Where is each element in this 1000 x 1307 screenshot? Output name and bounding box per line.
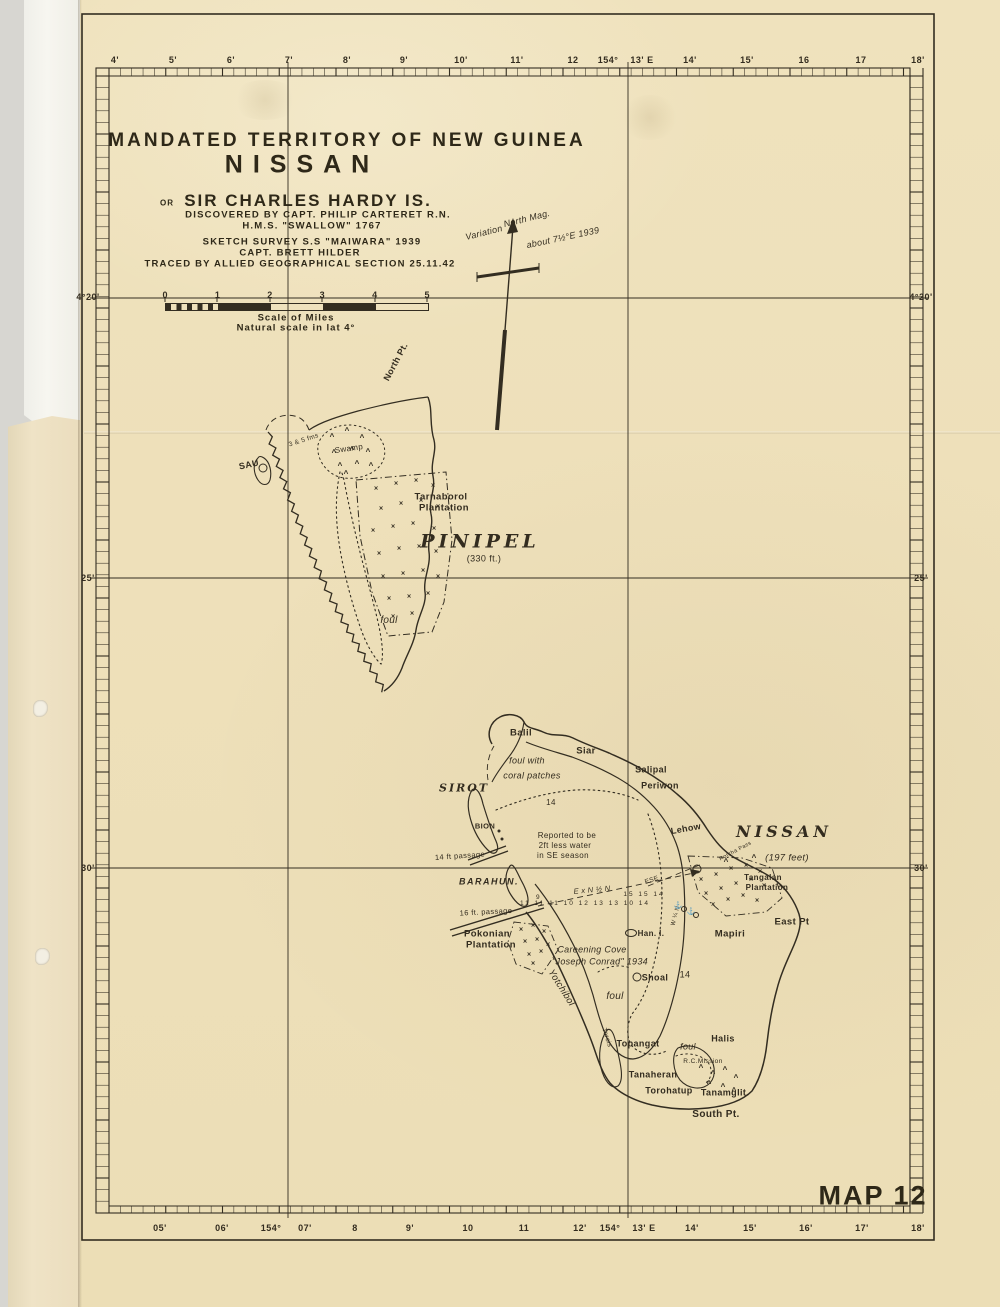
scale-number: 4 bbox=[372, 290, 377, 300]
graticule-label-bottom: 154° bbox=[600, 1223, 621, 1233]
map-label-foul-coral-2: coral patches bbox=[503, 772, 560, 781]
plantation-mark: × bbox=[762, 883, 766, 890]
lagoon-reef-dotted-shoal bbox=[598, 966, 630, 972]
plantation-mark: × bbox=[535, 937, 539, 944]
islet-dot bbox=[501, 838, 504, 841]
graticule-label-bottom: 10 bbox=[462, 1223, 473, 1233]
map-label-sounding-row-2: 15 15 14 bbox=[623, 892, 664, 899]
plantation-mark: × bbox=[542, 929, 546, 936]
pinipel-lagoon-dotted bbox=[336, 471, 382, 664]
graticule-label-top: 10' bbox=[454, 55, 468, 65]
plantation-mark: × bbox=[714, 872, 718, 879]
map-title-discovered: DISCOVERED BY CAPT. PHILIP CARTERET R.N. bbox=[185, 210, 451, 221]
plantation-mark: × bbox=[719, 886, 723, 893]
scale-number: 2 bbox=[267, 290, 272, 300]
graticule-label-right: 30' bbox=[914, 863, 928, 873]
map-label-careening-1: Careening Cove bbox=[557, 946, 626, 955]
map-title-or: OR bbox=[160, 199, 174, 208]
scale-segment bbox=[323, 304, 375, 310]
plantation-mark: × bbox=[421, 568, 425, 575]
graticule-label-top: 14' bbox=[683, 55, 697, 65]
graticule-label-top: 154° bbox=[598, 55, 619, 65]
plantation-mark: × bbox=[426, 591, 430, 598]
plantation-mark: × bbox=[726, 897, 730, 904]
map-label-pinipel: PINIPEL bbox=[420, 533, 540, 552]
vegetation-tuft: ^ bbox=[332, 449, 337, 457]
plantation-mark: × bbox=[411, 521, 415, 528]
map-drawing bbox=[0, 0, 1000, 1307]
map-label-salipal: Salipal bbox=[635, 766, 667, 775]
map-label-south-pt: South Pt. bbox=[692, 1110, 739, 1120]
graticule-label-bottom: 16' bbox=[799, 1223, 813, 1233]
map-label-sounding-14a: 14 bbox=[546, 799, 556, 807]
pinipel-reef-zigzag bbox=[268, 432, 383, 692]
map-label-reported-1: Reported to be bbox=[538, 832, 597, 840]
plantation-mark: × bbox=[519, 927, 523, 934]
graticule-label-left: 25' bbox=[81, 573, 95, 583]
scale-number: 3 bbox=[320, 290, 325, 300]
scale-number: 0 bbox=[162, 290, 167, 300]
map-label-periwon: Periwon bbox=[641, 782, 679, 791]
plantation-mark: × bbox=[523, 939, 527, 946]
plantation-mark: × bbox=[419, 498, 423, 505]
graticule-label-left: 30' bbox=[81, 863, 95, 873]
small-circle-symbol bbox=[693, 912, 699, 918]
vegetation-tuft: ^ bbox=[699, 1064, 704, 1072]
plantation-mark: × bbox=[399, 501, 403, 508]
islet-outline bbox=[625, 929, 637, 937]
map-label-halis: Halis bbox=[711, 1035, 735, 1044]
plantation-mark: × bbox=[431, 483, 435, 490]
graticule-label-bottom: 11 bbox=[519, 1223, 530, 1233]
graticule-label-bottom: 18' bbox=[911, 1223, 925, 1233]
vegetation-tuft: ^ bbox=[350, 446, 355, 454]
islet-dot bbox=[498, 830, 501, 833]
graticule-label-bottom: 154° bbox=[261, 1223, 282, 1233]
map-label-bion: BION bbox=[475, 822, 495, 830]
map-label-torohatup: Torohatup bbox=[645, 1087, 692, 1096]
map-label-tarnaborol-2: Plantation bbox=[419, 503, 469, 513]
vegetation-tuft: ^ bbox=[752, 854, 757, 862]
map-label-pokonian: Pokonian bbox=[464, 929, 510, 939]
plantation-mark: × bbox=[397, 546, 401, 553]
graticule-label-left: 4°20' bbox=[76, 292, 99, 302]
pinipel-north-coast bbox=[309, 397, 428, 430]
plantation-mark: × bbox=[417, 544, 421, 551]
graticule-label-top: 15' bbox=[740, 55, 754, 65]
plantation-mark: × bbox=[379, 506, 383, 513]
map-title-ship: H.M.S. "SWALLOW" 1767 bbox=[242, 221, 381, 232]
scanned-map-page: MANDATED TERRITORY OF NEW GUINEA NISSAN … bbox=[0, 0, 1000, 1307]
graticule-label-top: 16 bbox=[798, 55, 809, 65]
map-title-captain: CAPT. BRETT HILDER bbox=[239, 248, 360, 259]
graticule-label-top: 4' bbox=[111, 55, 119, 65]
map-label-siar: Siar bbox=[576, 746, 596, 756]
scale-segment bbox=[271, 304, 323, 310]
circle-symbol bbox=[259, 464, 268, 473]
vegetation-tuft: ^ bbox=[734, 1074, 739, 1082]
vegetation-tuft: ^ bbox=[345, 427, 350, 435]
vegetation-tuft: ^ bbox=[707, 1080, 712, 1088]
map-label-mapiri: Mapiri bbox=[715, 929, 745, 939]
map-title-island: NISSAN bbox=[225, 151, 379, 180]
vegetation-tuft: ^ bbox=[355, 460, 360, 468]
graticule-label-bottom: 06' bbox=[215, 1223, 229, 1233]
graticule-label-bottom: 15' bbox=[743, 1223, 757, 1233]
graticule-label-top: 7' bbox=[285, 55, 293, 65]
map-label-shoal: Shoal bbox=[642, 974, 669, 983]
map-label-topangat: Topangat bbox=[616, 1040, 659, 1049]
plantation-mark: × bbox=[711, 902, 715, 909]
map-label-foul-pinipel: foul bbox=[380, 616, 397, 626]
plantation-mark: × bbox=[391, 614, 395, 621]
graticule-label-bottom: 8 bbox=[352, 1223, 358, 1233]
graticule-label-right: 4°20' bbox=[909, 292, 932, 302]
map-label-balil: Balil bbox=[510, 728, 532, 738]
plantation-mark: × bbox=[734, 881, 738, 888]
plantation-mark: × bbox=[755, 898, 759, 905]
plantation-mark: × bbox=[377, 551, 381, 558]
map-label-reported-2: 2ft less water bbox=[539, 842, 592, 850]
plantation-mark: × bbox=[436, 504, 440, 511]
graticule-label-top: 8' bbox=[343, 55, 351, 65]
vegetation-tuft: ^ bbox=[338, 462, 343, 470]
graticule-label-top: 11' bbox=[510, 55, 523, 65]
plantation-mark: × bbox=[407, 594, 411, 601]
graticule-label-top: 18' bbox=[911, 55, 925, 65]
map-label-reported-3: in SE season bbox=[537, 852, 589, 860]
plantation-mark: × bbox=[434, 549, 438, 556]
plantation-mark: × bbox=[539, 949, 543, 956]
vegetation-tuft: ^ bbox=[711, 1070, 716, 1078]
vegetation-tuft: ^ bbox=[723, 1066, 728, 1074]
graticule-label-top: 12 bbox=[567, 55, 578, 65]
map-label-pokonian-2: Plantation bbox=[466, 940, 516, 950]
plantation-mark: × bbox=[374, 486, 378, 493]
vegetation-tuft: ^ bbox=[360, 434, 365, 442]
scale-caption-2: Natural scale in lat 4° bbox=[237, 323, 356, 334]
vegetation-tuft: ^ bbox=[369, 462, 374, 470]
graticule-label-bottom: 17' bbox=[855, 1223, 869, 1233]
plantation-mark: × bbox=[704, 891, 708, 898]
map-label-sounding-row: 11 11 11 10 12 13 13 10 14 bbox=[520, 901, 650, 908]
plantation-mark: × bbox=[527, 952, 531, 959]
scale-number: 1 bbox=[215, 290, 220, 300]
map-title-survey: SKETCH SURVEY S.S "MAIWARA" 1939 bbox=[203, 237, 422, 248]
north-arrow bbox=[477, 218, 539, 430]
graticule-lines bbox=[90, 62, 928, 1218]
map-label-foul-nissan-s: foul bbox=[680, 1043, 696, 1052]
map-title-territory: MANDATED TERRITORY OF NEW GUINEA bbox=[108, 130, 585, 152]
map-label-nissan: NISSAN bbox=[736, 824, 832, 840]
graticule-label-top: 6' bbox=[227, 55, 235, 65]
pinipel-north-spit bbox=[266, 415, 309, 430]
plantation-mark: × bbox=[414, 478, 418, 485]
plantation-mark: × bbox=[531, 961, 535, 968]
sirot-reef-link bbox=[487, 746, 494, 780]
plantation-mark: × bbox=[699, 877, 703, 884]
graticule-label-top: 13' E bbox=[630, 55, 653, 65]
graticule-label-bottom: 12' bbox=[573, 1223, 587, 1233]
plantation-mark: × bbox=[744, 863, 748, 870]
vegetation-tuft: ^ bbox=[344, 470, 349, 478]
plantation-mark: × bbox=[741, 893, 745, 900]
graticule-label-top: 5' bbox=[169, 55, 177, 65]
plantation-mark: × bbox=[401, 571, 405, 578]
lagoon-reef-dotted-north bbox=[496, 790, 638, 810]
graticule-label-top: 9' bbox=[400, 55, 408, 65]
map-title-alt-name: SIR CHARLES HARDY IS. bbox=[184, 191, 432, 211]
plantation-mark: × bbox=[758, 869, 762, 876]
graticule-label-bottom: 05' bbox=[153, 1223, 167, 1233]
map-label-east-pt: East Pt bbox=[774, 917, 809, 927]
scale-segment bbox=[166, 304, 218, 310]
plantation-mark: × bbox=[387, 596, 391, 603]
scale-segment bbox=[218, 304, 270, 310]
map-label-han-island: Han. I. bbox=[638, 930, 665, 938]
graticule-label-bottom: 9' bbox=[406, 1223, 414, 1233]
scale-bar bbox=[165, 303, 429, 311]
plantation-mark: × bbox=[381, 574, 385, 581]
scale-segment bbox=[376, 304, 428, 310]
plantation-mark: × bbox=[371, 528, 375, 535]
map-title-traced: TRACED BY ALLIED GEOGRAPHICAL SECTION 25… bbox=[144, 259, 455, 270]
graticule-label-bottom: 13' E bbox=[632, 1223, 655, 1233]
graticule-label-bottom: 14' bbox=[685, 1223, 699, 1233]
plantation-mark: × bbox=[436, 574, 440, 581]
vegetation-tuft: ^ bbox=[330, 433, 335, 441]
plantation-mark: × bbox=[394, 481, 398, 488]
map-number: MAP 12 bbox=[818, 1181, 927, 1212]
plantation-mark: × bbox=[546, 942, 550, 949]
map-label-careening-2: "Joseph Conrad" 1934 bbox=[552, 958, 648, 967]
plantation-mark: × bbox=[391, 524, 395, 531]
vegetation-tuft: ^ bbox=[366, 448, 371, 456]
map-label-nissan-elev: (197 feet) bbox=[765, 853, 809, 863]
graticule-label-top: 17 bbox=[855, 55, 866, 65]
scale-number: 5 bbox=[424, 290, 429, 300]
vegetation-tuft: ^ bbox=[721, 1083, 726, 1091]
plantation-mark: × bbox=[729, 866, 733, 873]
plantation-mark: × bbox=[410, 611, 414, 618]
plantation-mark: × bbox=[749, 877, 753, 884]
map-label-foul-coral-1: foul with bbox=[509, 757, 545, 766]
map-label-sounding-14b: 14 bbox=[680, 971, 691, 980]
graticule-label-bottom: 07' bbox=[298, 1223, 312, 1233]
map-label-barahun: BARAHUN. bbox=[459, 878, 519, 887]
map-label-sirot: SIROT bbox=[439, 783, 489, 794]
plantation-mark: × bbox=[432, 526, 436, 533]
small-circle-symbol bbox=[681, 906, 687, 912]
vegetation-tuft: ^ bbox=[724, 858, 729, 866]
circle-symbol bbox=[633, 973, 642, 982]
vegetation-tuft: ^ bbox=[732, 1087, 737, 1095]
map-label-foul-nissan-w: foul bbox=[606, 992, 623, 1002]
graticule-label-right: 25' bbox=[914, 573, 928, 583]
map-label-tanaheran: Tanaheran bbox=[629, 1071, 677, 1080]
circle-symbol bbox=[693, 865, 702, 874]
plantation-mark: × bbox=[531, 923, 535, 930]
map-label-pinipel-elev: (330 ft.) bbox=[467, 555, 502, 564]
map-label-tangalan-2: Plantation bbox=[746, 884, 789, 892]
